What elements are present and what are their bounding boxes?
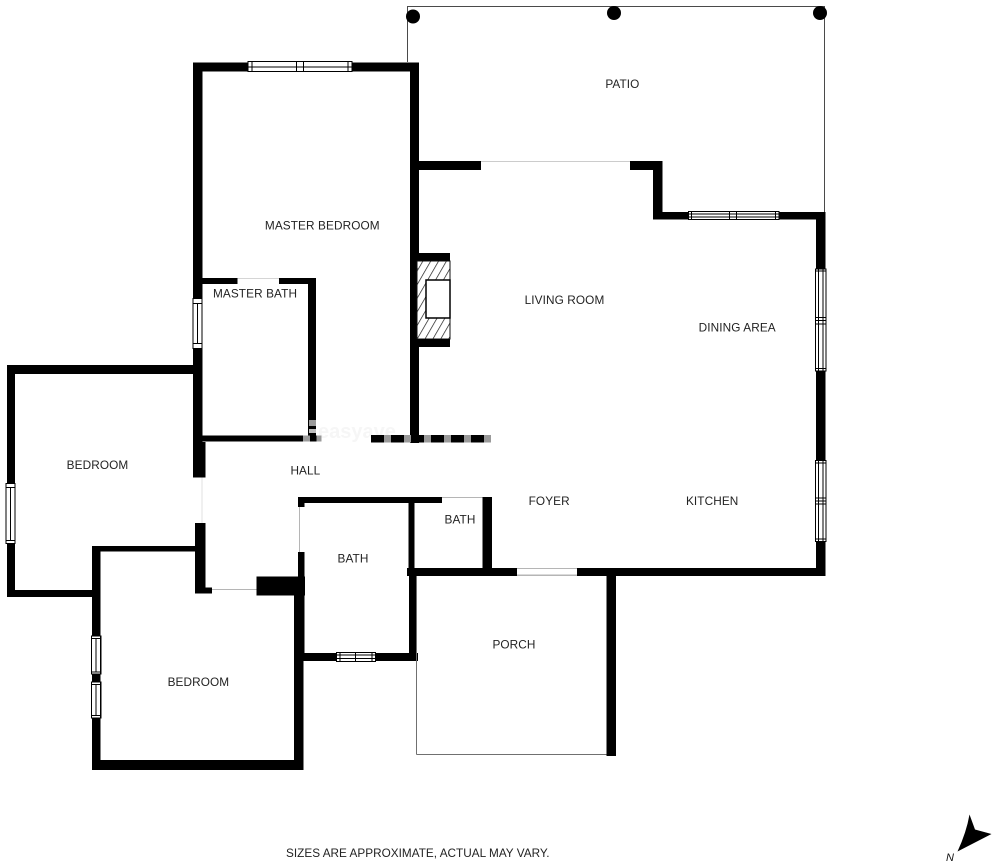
svg-text:BEDROOM: BEDROOM (67, 458, 129, 472)
svg-text:SIZES ARE APPROXIMATE, ACTUAL: SIZES ARE APPROXIMATE, ACTUAL MAY VARY. (286, 847, 550, 860)
svg-text:DINING AREA: DINING AREA (699, 321, 776, 335)
svg-text:BEDROOM: BEDROOM (168, 675, 230, 689)
svg-text:HALL: HALL (290, 464, 320, 478)
svg-text:PORCH: PORCH (492, 638, 535, 652)
svg-text:MASTER BATH: MASTER BATH (213, 287, 297, 301)
svg-text:BATH: BATH (445, 513, 476, 527)
svg-text:PATIO: PATIO (605, 77, 639, 91)
svg-text:LIVING ROOM: LIVING ROOM (525, 293, 605, 307)
svg-text:N: N (946, 852, 954, 864)
svg-text:MASTER BEDROOM: MASTER BEDROOM (265, 219, 380, 233)
svg-text:BATH: BATH (338, 552, 369, 566)
svg-text:KITCHEN: KITCHEN (686, 494, 738, 508)
svg-text:FOYER: FOYER (529, 494, 570, 508)
